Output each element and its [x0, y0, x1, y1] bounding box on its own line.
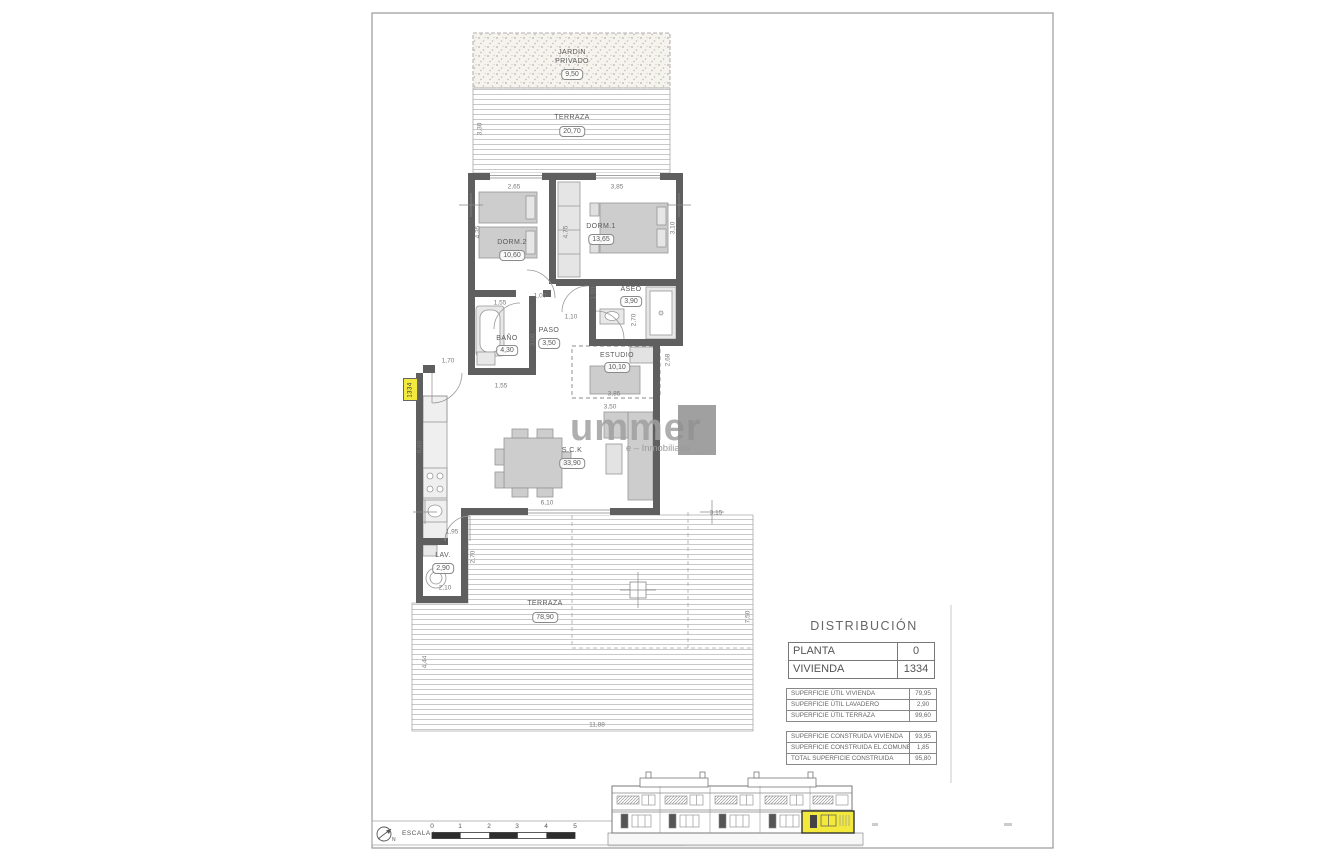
dim-label: 11,88	[589, 722, 605, 729]
dim-label: 4,75	[563, 226, 570, 239]
area-badge-dorm2: 10,60	[499, 250, 525, 261]
area-badge-sck: 33,90	[559, 458, 585, 469]
dim-label: 2,70	[470, 551, 477, 564]
surface-value: 2,90	[909, 700, 936, 710]
surface-label: SUPERFICIE ÚTIL VIVIENDA	[787, 689, 909, 699]
scale-tick: 0	[430, 823, 434, 830]
surface-value: 79,95	[909, 689, 936, 699]
surface-value: 95,80	[909, 754, 936, 764]
room-label-jardin: JARDIN	[558, 49, 586, 56]
dim-label: 4,44	[422, 656, 429, 669]
info-value: 0	[897, 643, 934, 660]
area-badge-terraza: 78,90	[532, 612, 558, 623]
info-label: VIVIENDA	[789, 661, 897, 678]
unit-number-text: 1334	[408, 382, 414, 397]
superficie-construida-table: SUPERFICIE CONSTRUIDA VIVIENDA 93,95 SUP…	[786, 731, 937, 765]
surface-value: 99,60	[909, 711, 936, 721]
surface-label: SUPERFICIE CONSTRUIDA VIVIENDA	[787, 732, 909, 742]
area-badge-bano: 4,30	[496, 345, 518, 356]
area-badge-lav: 2,90	[432, 563, 454, 574]
scale-tick: 5	[573, 823, 577, 830]
plan-sheet: ummer e – Inmobiliaria – 1334 JARDIN PRI…	[0, 0, 1320, 859]
room-label-paso: PASO	[539, 327, 560, 334]
surface-label: SUPERFICIE ÚTIL LAVADERO	[787, 700, 909, 710]
table-row: SUPERFICIE ÚTIL LAVADERO 2,90	[787, 699, 936, 710]
north-letter: N	[392, 837, 396, 843]
dim-label: 3,85	[608, 391, 621, 398]
room-label-bano: BAÑO	[496, 335, 517, 342]
table-row: SUPERFICIE ÚTIL VIVIENDA 79,95	[787, 689, 936, 699]
scale-tick: 4	[544, 823, 548, 830]
dim-label: 2,10	[439, 585, 452, 592]
room-label-terraza: TERRAZA	[527, 600, 562, 607]
watermark-tagline: e – Inmobiliaria –	[626, 443, 698, 454]
room-label-terraza-top: TERRAZA	[554, 114, 589, 121]
surface-label: TOTAL SUPERFICIE CONSTRUIDA	[787, 754, 909, 764]
scale-label: ESCALA :	[402, 830, 435, 837]
dim-label: 2,70	[631, 314, 638, 327]
dim-label: 3,00	[530, 334, 537, 347]
scale-tick: 2	[487, 823, 491, 830]
room-label-estudio: ESTUDIO	[600, 352, 634, 359]
table-row: TOTAL SUPERFICIE CONSTRUIDA 95,80	[787, 753, 936, 764]
room-label-dorm1: DORM.1	[586, 223, 616, 230]
surface-value: 93,95	[909, 732, 936, 742]
dim-label: 0,80	[417, 441, 424, 454]
surface-value: 1,85	[909, 743, 936, 753]
room-label-lav: LAV.	[435, 552, 451, 559]
dim-label: 1,70	[442, 358, 455, 365]
surface-label: SUPERFICIE ÚTIL TERRAZA	[787, 711, 909, 721]
superficie-util-table: SUPERFICIE ÚTIL VIVIENDA 79,95 SUPERFICI…	[786, 688, 937, 722]
room-label-jardin2: PRIVADO	[555, 58, 589, 65]
surface-label: SUPERFICIE CONSTRUIDA EL.COMUNES	[787, 743, 909, 753]
scale-tick: 1	[458, 823, 462, 830]
area-badge-aseo: 3,90	[620, 296, 642, 307]
dim-label: 3,10	[670, 222, 677, 235]
dim-label: 1,10	[565, 314, 578, 321]
dim-label: 6,10	[541, 500, 554, 507]
table-row: SUPERFICIE CONSTRUIDA VIVIENDA 93,95	[787, 732, 936, 742]
dim-label: 1,55	[495, 383, 508, 390]
dim-label: 1,95	[446, 529, 459, 536]
dim-label: 3,85	[611, 184, 624, 191]
dim-label: 4,35	[475, 226, 482, 239]
dim-label: 1,50	[591, 287, 598, 300]
area-badge-paso: 3,50	[538, 338, 560, 349]
dim-label: 1,00	[534, 293, 547, 300]
area-badge-terraza-top: 20,70	[559, 126, 585, 137]
dim-label: 7,50	[745, 611, 752, 624]
dim-label: 2,68	[665, 354, 672, 367]
dim-label: 3,15	[710, 510, 723, 517]
dim-label: 1,55	[494, 300, 507, 307]
area-badge-jardin: 9,50	[561, 69, 583, 80]
info-label: PLANTA	[789, 643, 897, 660]
info-value: 1334	[897, 661, 934, 678]
building-elevation	[608, 772, 1012, 846]
table-row: SUPERFICIE CONSTRUIDA EL.COMUNES 1,85	[787, 742, 936, 753]
area-badge-dorm1: 13,65	[588, 234, 614, 245]
dim-label: 2,65	[508, 184, 521, 191]
unit-number-tag: 1334	[403, 378, 418, 401]
table-row: PLANTA 0	[789, 643, 934, 660]
info-table: PLANTA 0 VIVIENDA 1334	[788, 642, 935, 679]
table-row: SUPERFICIE ÚTIL TERRAZA 99,60	[787, 710, 936, 721]
scale-tick: 3	[515, 823, 519, 830]
area-badge-estudio: 10,10	[604, 362, 630, 373]
highlighted-unit	[802, 811, 854, 833]
north-arrow-icon	[377, 827, 391, 841]
room-label-dorm2: DORM.2	[497, 239, 527, 246]
room-label-aseo: ASEO	[620, 286, 641, 293]
dim-label: 3,30	[477, 123, 484, 136]
title-distribucion: DISTRIBUCIÓN	[810, 619, 918, 633]
table-row: VIVIENDA 1334	[789, 660, 934, 678]
